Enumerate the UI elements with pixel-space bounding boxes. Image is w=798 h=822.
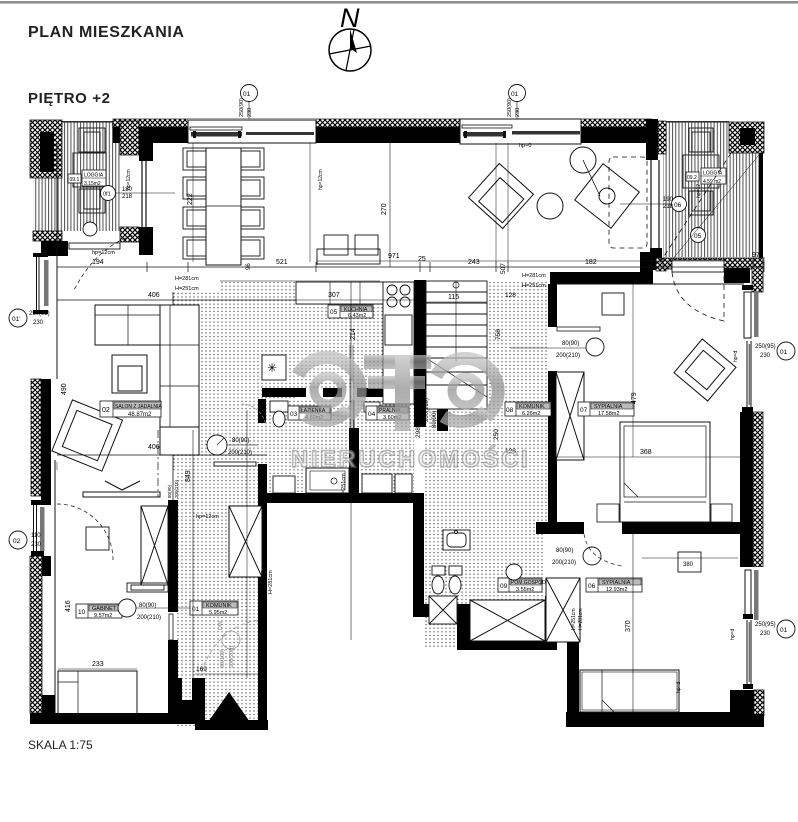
svg-text:PLAN MIESZKANIA: PLAN MIESZKANIA [28, 24, 185, 41]
svg-text:9.57m2: 9.57m2 [94, 613, 112, 619]
svg-text:270: 270 [381, 203, 388, 215]
svg-text:406: 406 [148, 292, 160, 299]
svg-text:09.2: 09.2 [687, 175, 697, 181]
svg-text:507: 507 [500, 263, 507, 274]
svg-text:02: 02 [13, 538, 21, 545]
svg-text:97: 97 [752, 252, 760, 259]
svg-text:hp=12cm: hp=12cm [318, 169, 324, 190]
svg-text:200(210): 200(210) [556, 353, 580, 359]
svg-text:hp=d: hp=d [733, 351, 739, 362]
svg-text:128: 128 [505, 292, 516, 299]
svg-text:04: 04 [368, 411, 376, 418]
svg-text:370: 370 [625, 620, 632, 632]
svg-text:200(210): 200(210) [174, 479, 179, 498]
svg-text:218: 218 [663, 204, 674, 210]
svg-text:48.87m2: 48.87m2 [128, 412, 152, 418]
svg-text:214: 214 [350, 328, 357, 340]
svg-text:GABINET: GABINET [92, 606, 117, 612]
svg-text:LOGGIA: LOGGIA [84, 173, 104, 179]
svg-text:200(210): 200(210) [228, 450, 252, 456]
svg-text:243: 243 [468, 259, 480, 266]
svg-text:H=251cm: H=251cm [175, 286, 199, 292]
svg-text:03: 03 [290, 411, 298, 418]
svg-text:490: 490 [61, 383, 68, 395]
svg-text:416: 416 [65, 600, 72, 612]
svg-text:H=251cm: H=251cm [341, 473, 347, 497]
svg-text:✳: ✳ [267, 361, 277, 375]
svg-text:KOMUNIK: KOMUNIK [206, 603, 232, 609]
svg-text:01: 01 [780, 627, 788, 634]
svg-text:6.26m2: 6.26m2 [522, 411, 540, 417]
svg-text:H=281cm: H=281cm [175, 276, 199, 282]
svg-text:hp=12cm: hp=12cm [126, 169, 132, 190]
svg-text:H=281cm: H=281cm [578, 608, 584, 630]
svg-text:H=251cm: H=251cm [571, 608, 577, 630]
svg-text:H=281cm: H=281cm [522, 273, 546, 279]
svg-text:4.59 m2: 4.59 m2 [703, 179, 721, 185]
svg-text:479: 479 [631, 392, 638, 404]
svg-text:hp=12cm: hp=12cm [92, 250, 115, 256]
svg-text:368: 368 [640, 449, 652, 456]
svg-text:230: 230 [31, 542, 42, 548]
svg-text:H=251cm: H=251cm [260, 570, 266, 594]
svg-text:hp=12cm: hp=12cm [196, 514, 219, 520]
svg-text:194: 194 [92, 259, 104, 266]
svg-text:233: 233 [92, 661, 104, 668]
svg-text:406: 406 [148, 444, 160, 451]
svg-text:hp=12: hp=12 [696, 184, 702, 198]
svg-text:230: 230 [760, 353, 771, 359]
svg-text:3.15m2: 3.15m2 [84, 181, 101, 187]
svg-text:06: 06 [588, 583, 596, 590]
svg-text:NIERUCHOMOŚCI: NIERUCHOMOŚCI [291, 445, 530, 473]
svg-text:hp=0: hp=0 [519, 143, 531, 149]
svg-text:PIĘTRO +2: PIĘTRO +2 [28, 90, 111, 107]
svg-text:05: 05 [694, 233, 702, 240]
svg-text:SYPIALNIA: SYPIALNIA [602, 580, 631, 586]
svg-text:230: 230 [760, 631, 771, 637]
svg-text:80(90): 80(90) [562, 341, 579, 347]
svg-text:hp=d: hp=d [730, 629, 736, 640]
svg-text:01: 01 [511, 91, 519, 98]
svg-text:01: 01 [780, 349, 788, 356]
svg-text:01: 01 [243, 91, 251, 98]
svg-text:250(90): 250(90) [239, 98, 245, 117]
svg-text:01': 01' [12, 316, 20, 323]
svg-text:230: 230 [515, 108, 521, 117]
svg-text:12.93m2: 12.93m2 [606, 587, 627, 593]
svg-text:SYPIALNIA: SYPIALNIA [594, 404, 623, 410]
svg-text:200(210): 200(210) [424, 398, 430, 422]
svg-text:298: 298 [415, 427, 422, 438]
svg-text:DW: DW [218, 620, 224, 630]
svg-text:182: 182 [585, 259, 597, 266]
svg-text:250(95): 250(95) [755, 622, 776, 628]
svg-text:96: 96 [246, 263, 252, 270]
svg-text:06: 06 [674, 202, 682, 209]
svg-text:hp=d: hp=d [676, 682, 682, 693]
svg-text:80(90): 80(90) [556, 548, 573, 554]
svg-text:110: 110 [31, 533, 41, 539]
svg-text:169: 169 [196, 666, 207, 673]
svg-text:218: 218 [122, 194, 133, 200]
svg-text:25: 25 [418, 256, 426, 263]
svg-text:H=281cm: H=281cm [349, 473, 355, 497]
svg-text:200(210): 200(210) [552, 560, 576, 566]
svg-text:SALON Z JADALNIA: SALON Z JADALNIA [115, 404, 162, 410]
svg-text:3.55m2: 3.55m2 [516, 587, 534, 593]
svg-text:SKALA 1:75: SKALA 1:75 [28, 738, 93, 752]
svg-text:200(200): 200(200) [229, 646, 235, 668]
svg-text:250: 250 [493, 429, 500, 440]
svg-text:250(90): 250(90) [507, 98, 513, 117]
svg-text:115: 115 [448, 294, 459, 301]
svg-text:190: 190 [663, 197, 674, 203]
svg-text:KOMUNIK: KOMUNIK [519, 404, 545, 410]
svg-text:08: 08 [506, 407, 514, 414]
svg-text:H=281cm: H=281cm [268, 570, 274, 594]
svg-text:80(90): 80(90) [167, 484, 172, 498]
svg-text:200(210): 200(210) [137, 615, 161, 621]
svg-text:07: 07 [580, 407, 588, 414]
svg-text:10: 10 [78, 609, 86, 616]
svg-text:250(95): 250(95) [29, 311, 50, 317]
svg-text:80(90): 80(90) [232, 438, 249, 444]
svg-text:250(95): 250(95) [755, 344, 776, 350]
svg-text:05: 05 [330, 309, 338, 316]
svg-text:230: 230 [33, 320, 44, 326]
svg-text:09.1: 09.1 [70, 177, 80, 183]
svg-text:849: 849 [185, 470, 192, 482]
svg-text:5.95m2: 5.95m2 [209, 610, 227, 616]
svg-text:0f1: 0f1 [103, 192, 111, 198]
svg-text:17.58m2: 17.58m2 [598, 411, 619, 417]
svg-text:POM.GOSPOD: POM.GOSPOD [511, 580, 546, 586]
svg-text:380: 380 [683, 562, 694, 568]
svg-text:230: 230 [247, 108, 253, 117]
svg-text:758: 758 [495, 329, 502, 340]
svg-text:09: 09 [500, 583, 508, 590]
svg-text:90(100): 90(100) [220, 649, 226, 668]
svg-text:307: 307 [328, 292, 340, 299]
svg-text:02: 02 [102, 407, 110, 414]
svg-text:80(90): 80(90) [432, 411, 438, 428]
svg-text:LOGGIA: LOGGIA [703, 171, 723, 177]
svg-text:521: 521 [276, 259, 288, 266]
svg-text:H=251cm: H=251cm [522, 283, 546, 289]
